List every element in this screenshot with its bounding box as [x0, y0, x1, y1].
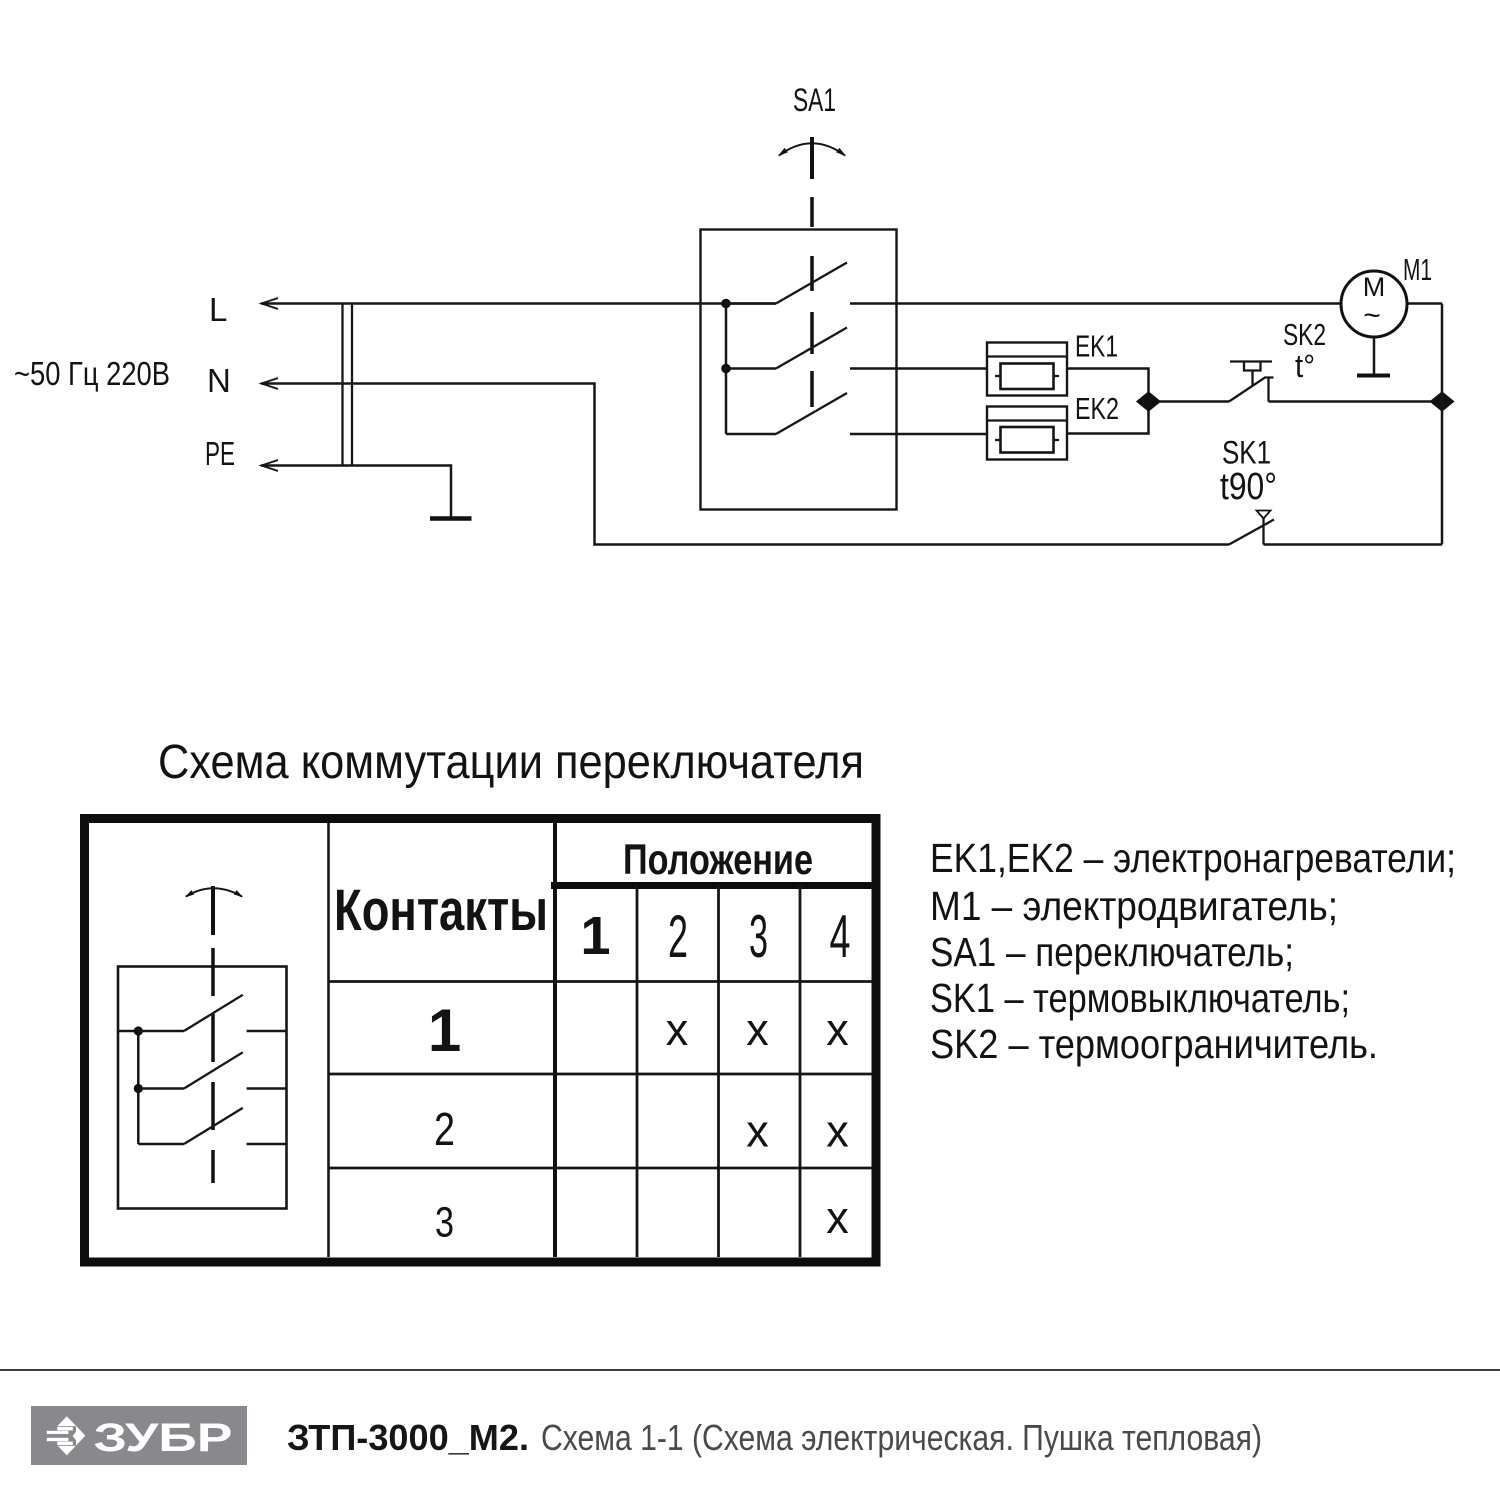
svg-text:M1: M1: [1403, 252, 1432, 287]
svg-text:3: 3: [749, 903, 768, 970]
svg-text:4: 4: [830, 903, 851, 970]
svg-text:EK1: EK1: [1075, 329, 1118, 364]
svg-text:SA1: SA1: [793, 82, 836, 118]
svg-text:1: 1: [580, 906, 610, 966]
svg-text:SA1 – переключатель;: SA1 – переключатель;: [930, 929, 1294, 975]
svg-text:t90°: t90°: [1220, 466, 1277, 508]
svg-text:M1 – электродвигатель;: M1 – электродвигатель;: [930, 883, 1338, 929]
svg-text:SK2: SK2: [1283, 317, 1326, 352]
svg-text:ЗТП-3000_М2.: ЗТП-3000_М2.: [287, 1417, 529, 1458]
svg-text:SK1 – термовыключатель;: SK1 – термовыключатель;: [930, 975, 1350, 1021]
svg-text:Положение: Положение: [623, 836, 813, 884]
svg-text:Схема коммутации переключателя: Схема коммутации переключателя: [158, 736, 864, 789]
svg-text:3: 3: [435, 1199, 454, 1247]
svg-text:EK1,EK2 – электронагреватели;: EK1,EK2 – электронагреватели;: [930, 835, 1456, 881]
svg-text:SK2 – термоограничитель.: SK2 – термоограничитель.: [930, 1021, 1378, 1067]
svg-text:M: M: [1363, 272, 1386, 302]
svg-text:ЗУБР: ЗУБР: [94, 1416, 233, 1460]
svg-text:EK2: EK2: [1075, 391, 1119, 426]
svg-text:L: L: [209, 291, 227, 328]
svg-text:x: x: [746, 1106, 769, 1157]
svg-text:2: 2: [668, 903, 688, 970]
svg-text:~: ~: [1363, 299, 1381, 332]
svg-text:x: x: [826, 1192, 849, 1243]
svg-text:x: x: [826, 1106, 849, 1157]
svg-text:PE: PE: [205, 435, 235, 472]
svg-text:N: N: [207, 362, 231, 399]
svg-text:Контакты: Контакты: [334, 878, 548, 943]
svg-text:x: x: [666, 1004, 689, 1055]
svg-text:t°: t°: [1295, 348, 1315, 384]
svg-text:~50 Гц 220В: ~50 Гц 220В: [14, 355, 170, 392]
svg-text:Схема 1-1 (Схема электрическая: Схема 1-1 (Схема электрическая. Пушка те…: [541, 1417, 1262, 1458]
svg-text:x: x: [826, 1004, 849, 1055]
svg-text:x: x: [746, 1004, 769, 1055]
svg-text:2: 2: [434, 1103, 455, 1155]
svg-text:1: 1: [428, 997, 461, 1064]
